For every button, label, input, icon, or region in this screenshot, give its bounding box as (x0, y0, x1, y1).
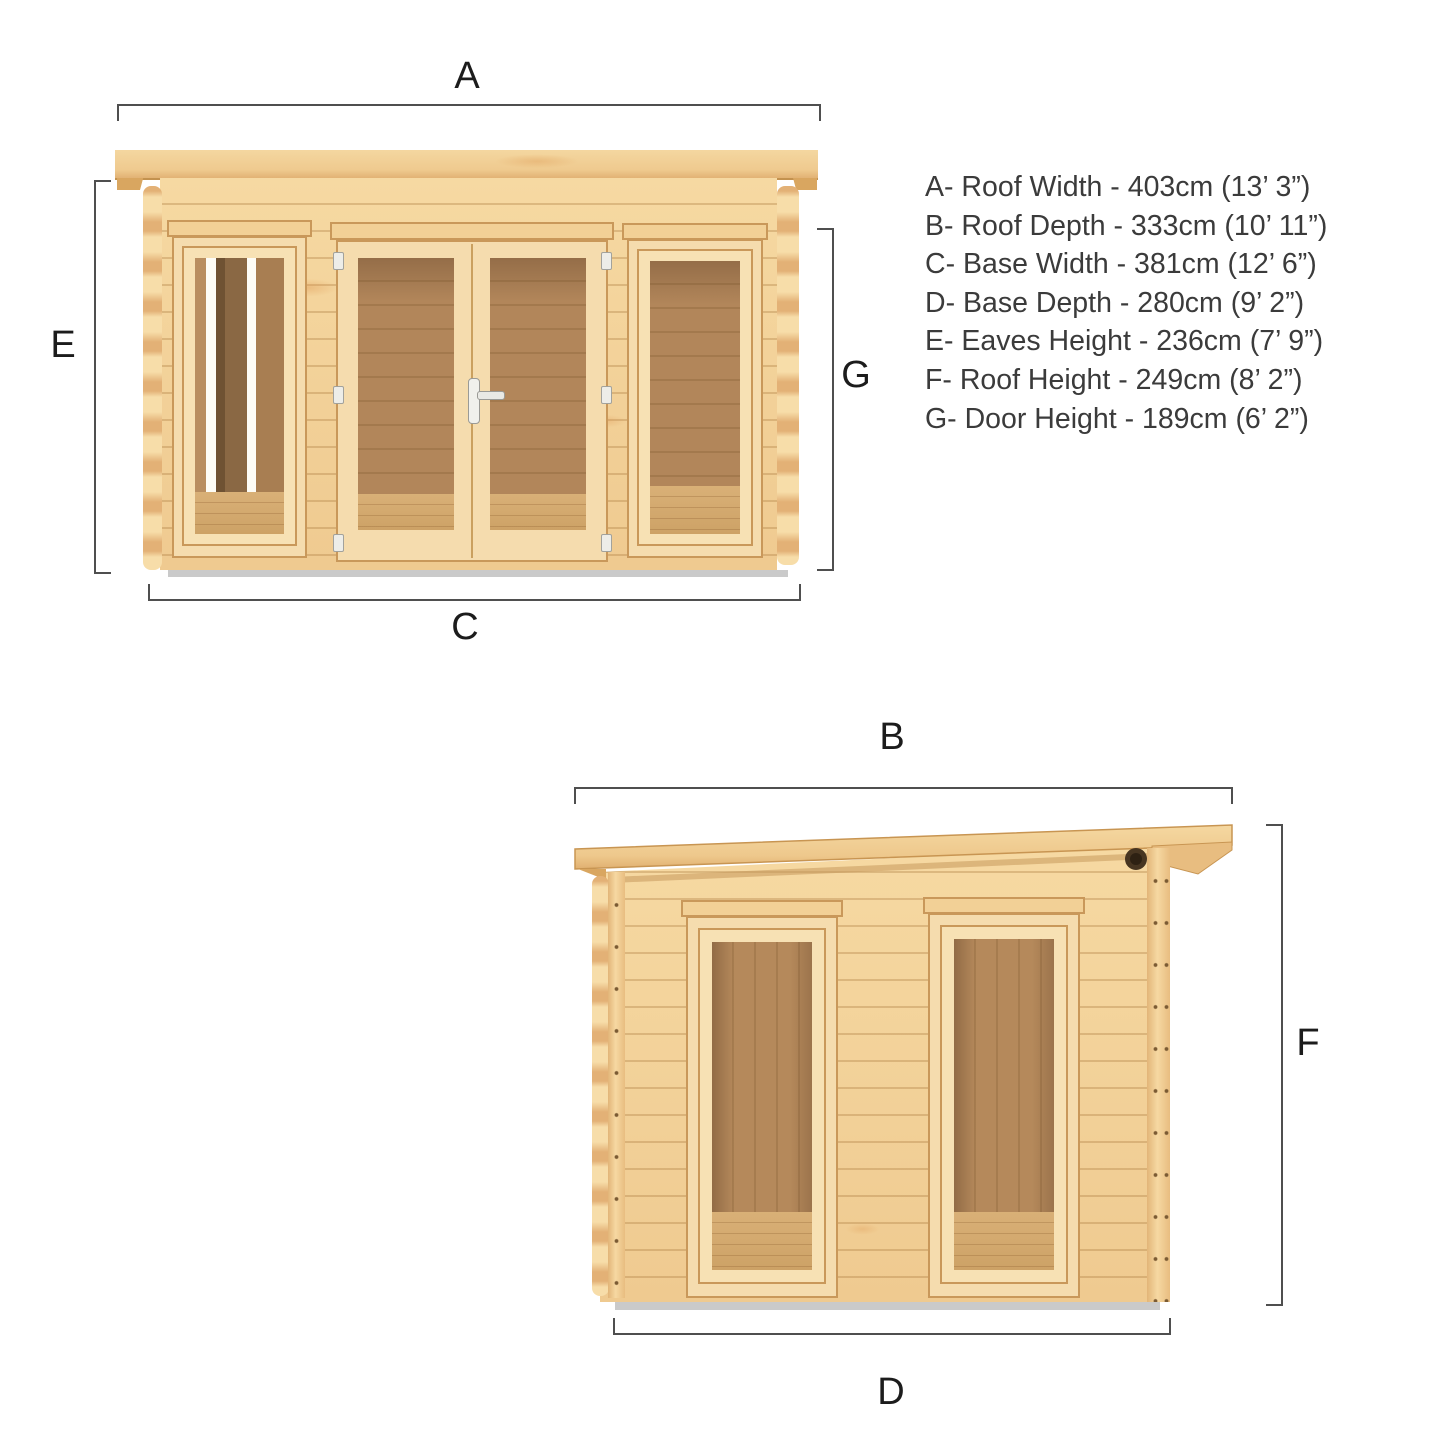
side-window2-floor (954, 1212, 1054, 1270)
front-door-right-floor (490, 494, 586, 530)
dim-label-b: B (879, 718, 904, 756)
legend-item-g: G- Door Height - 189cm (6’ 2”) (925, 400, 1430, 439)
diagram-canvas: A (0, 0, 1445, 1445)
dim-bracket-roof-height-f (1266, 824, 1283, 1306)
legend-item-f: F- Roof Height - 249cm (8’ 2”) (925, 361, 1430, 400)
dim-label-f: F (1296, 1024, 1319, 1062)
front-left-log-ends (143, 186, 162, 570)
dim-label-g: G (841, 356, 871, 394)
door-hinge-mid-left (333, 386, 344, 404)
dim-label-e: E (50, 326, 75, 364)
front-left-window-glass (195, 258, 284, 534)
dim-bracket-eaves-height-e (94, 180, 111, 574)
side-window2-glass (954, 939, 1054, 1270)
door-handle-lever (477, 391, 505, 400)
door-hinge-top-right (601, 252, 612, 270)
door-hinge-bottom-right (601, 534, 612, 552)
front-door-left-glass (358, 258, 454, 530)
dim-bracket-door-height-g (817, 228, 834, 571)
side-window1-floor (712, 1212, 812, 1270)
side-window1-header (681, 900, 843, 917)
dimension-legend: A- Roof Width - 403cm (13’ 3”) B- Roof D… (925, 168, 1430, 438)
door-hinge-bottom-left (333, 534, 344, 552)
front-right-window-glass (650, 261, 740, 534)
front-door-left-floor (358, 494, 454, 530)
legend-item-c: C- Base Width - 381cm (12’ 6”) (925, 245, 1430, 284)
dim-label-a: A (454, 57, 479, 95)
dim-bracket-base-depth-d (613, 1318, 1171, 1335)
front-right-log-ends (777, 186, 799, 565)
front-left-window-header (167, 220, 312, 237)
dim-label-c: C (451, 608, 478, 646)
front-right-window-floor (650, 486, 740, 534)
front-roof (115, 150, 818, 180)
front-right-window-header (622, 223, 768, 240)
side-left-corner-board (608, 872, 625, 1298)
legend-item-a: A- Roof Width - 403cm (13’ 3”) (925, 168, 1430, 207)
legend-item-d: D- Base Depth - 280cm (9’ 2”) (925, 284, 1430, 323)
door-hinge-mid-right (601, 386, 612, 404)
dim-bracket-roof-width-a (117, 104, 821, 121)
front-door-header (330, 222, 614, 240)
legend-item-e: E- Eaves Height - 236cm (7’ 9”) (925, 322, 1430, 361)
dim-bracket-roof-depth-b (574, 787, 1233, 804)
dim-label-d: D (877, 1373, 904, 1411)
front-base-shadow (168, 570, 788, 577)
side-right-corner-board (1147, 848, 1170, 1302)
front-left-window-floor (195, 492, 284, 534)
door-handle-backplate (468, 378, 480, 424)
side-left-log-ends (592, 876, 609, 1296)
side-window2-header (923, 897, 1085, 914)
legend-item-b: B- Roof Depth - 333cm (10’ 11”) (925, 207, 1430, 246)
door-hinge-top-left (333, 252, 344, 270)
side-window1-glass (712, 942, 812, 1270)
side-base-shadow (615, 1302, 1160, 1310)
dim-bracket-base-width-c (148, 584, 801, 601)
